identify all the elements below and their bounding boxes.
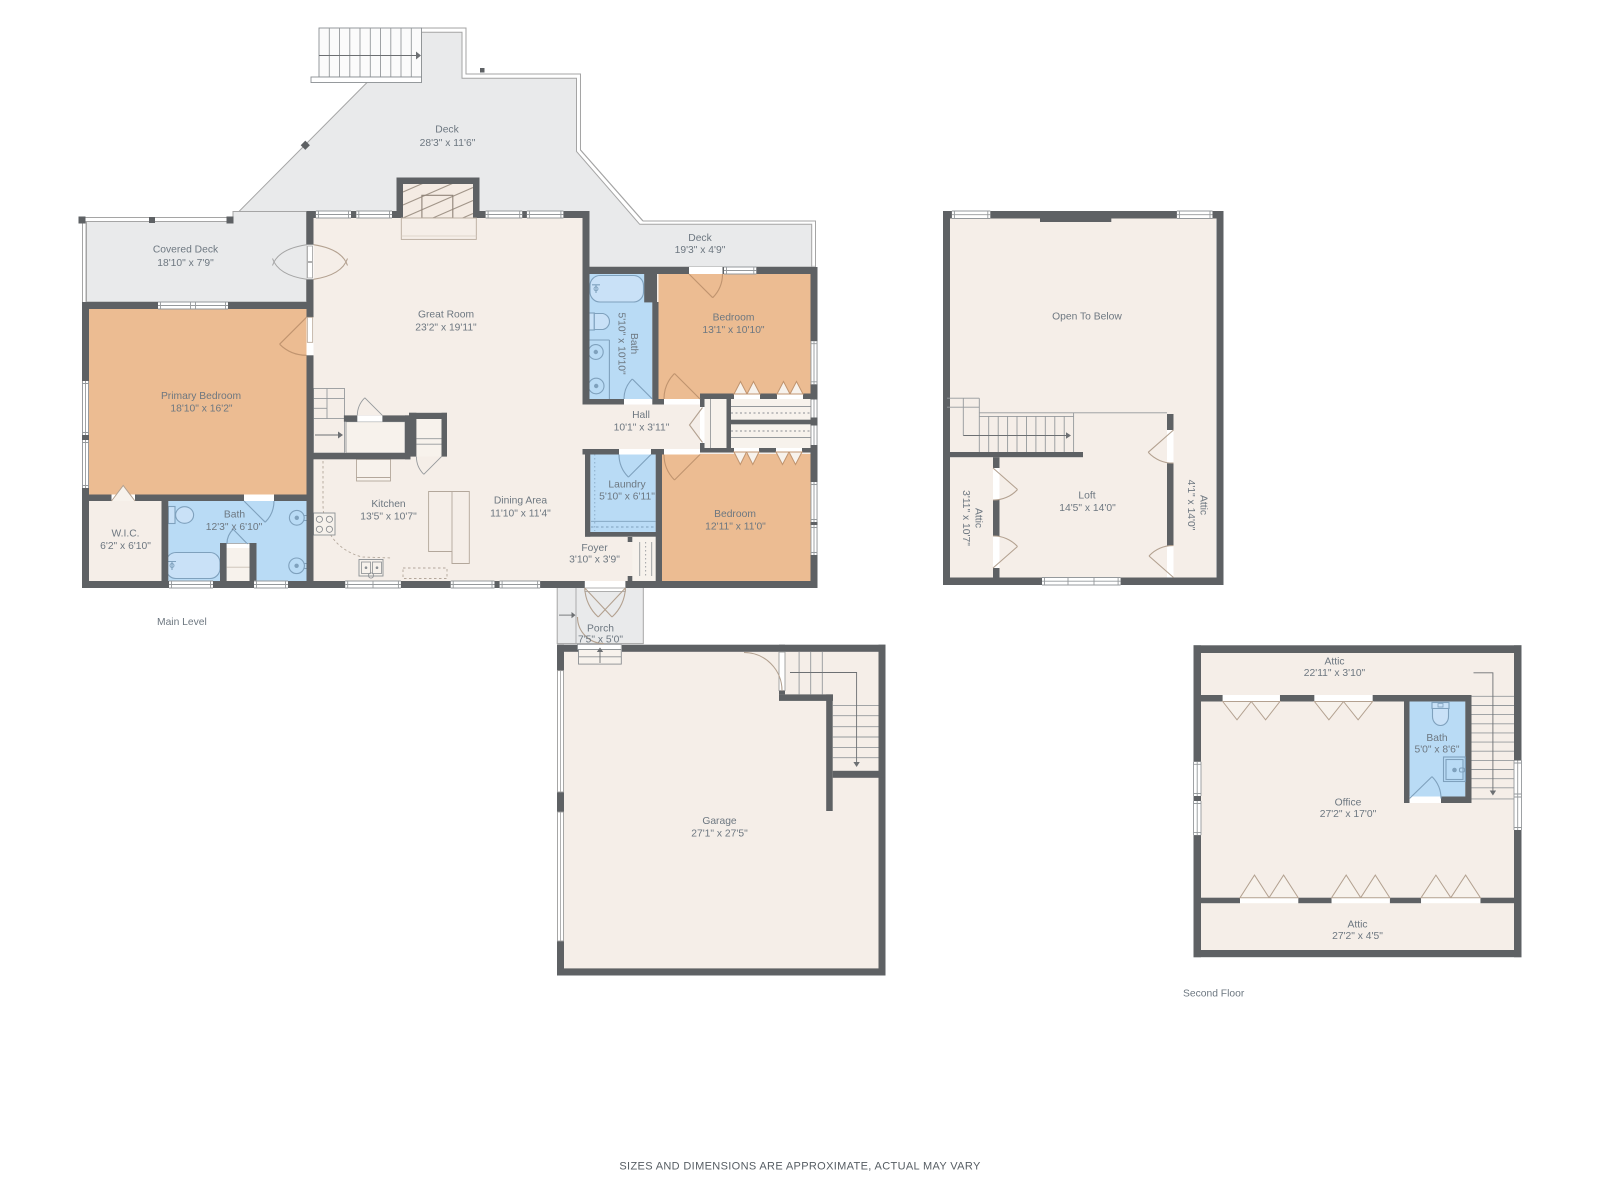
svg-text:Great Room: Great Room — [418, 310, 474, 321]
svg-text:Main Level: Main Level — [157, 617, 207, 628]
svg-text:Second Floor: Second Floor — [1183, 989, 1245, 1000]
svg-text:7'5" x 5'0": 7'5" x 5'0" — [578, 635, 623, 646]
svg-text:5'0" x 8'6": 5'0" x 8'6" — [1414, 745, 1459, 756]
svg-text:Garage: Garage — [702, 816, 737, 827]
svg-text:Office: Office — [1335, 798, 1362, 809]
svg-text:6'2" x 6'10": 6'2" x 6'10" — [100, 541, 151, 552]
svg-text:27'2" x 17'0": 27'2" x 17'0" — [1320, 809, 1377, 820]
svg-text:27'2" x 4'5": 27'2" x 4'5" — [1332, 931, 1383, 942]
svg-text:Foyer: Foyer — [581, 543, 608, 554]
svg-text:Bedroom: Bedroom — [713, 313, 755, 324]
svg-text:13'1" x 10'10": 13'1" x 10'10" — [702, 325, 765, 336]
svg-text:Attic: Attic — [1324, 657, 1344, 668]
svg-text:19'3" x 4'9": 19'3" x 4'9" — [675, 245, 726, 256]
svg-text:18'10" x 16'2": 18'10" x 16'2" — [170, 404, 233, 415]
svg-text:10'1" x 3'11": 10'1" x 3'11" — [614, 423, 670, 434]
svg-text:Dining Area: Dining Area — [494, 496, 548, 507]
svg-text:12'3" x 6'10": 12'3" x 6'10" — [206, 522, 263, 533]
svg-text:Laundry: Laundry — [608, 480, 646, 491]
svg-text:13'5" x 10'7": 13'5" x 10'7" — [360, 512, 417, 523]
svg-text:Attic: Attic — [1347, 920, 1367, 931]
svg-text:28'3" x 11'6": 28'3" x 11'6" — [420, 138, 476, 149]
svg-text:11'10" x 11'4": 11'10" x 11'4" — [490, 509, 551, 520]
svg-text:Bath: Bath — [224, 510, 245, 521]
svg-text:Covered Deck: Covered Deck — [153, 245, 219, 256]
svg-text:Deck: Deck — [435, 125, 459, 136]
svg-text:3'10" x 3'9": 3'10" x 3'9" — [569, 555, 620, 566]
svg-text:Deck: Deck — [688, 233, 712, 244]
svg-text:SIZES AND DIMENSIONS ARE APPRO: SIZES AND DIMENSIONS ARE APPROXIMATE, AC… — [619, 1161, 981, 1173]
svg-text:Porch: Porch — [587, 624, 614, 635]
svg-text:5'10" x 6'11": 5'10" x 6'11" — [599, 492, 655, 503]
svg-text:Primary Bedroom: Primary Bedroom — [161, 391, 241, 402]
svg-text:18'10" x 7'9": 18'10" x 7'9" — [157, 258, 214, 269]
svg-text:Bedroom: Bedroom — [714, 509, 756, 520]
svg-text:Kitchen: Kitchen — [371, 499, 406, 510]
svg-text:14'5" x 14'0": 14'5" x 14'0" — [1059, 503, 1116, 514]
svg-text:27'1" x 27'5": 27'1" x 27'5" — [691, 829, 748, 840]
svg-text:Open To Below: Open To Below — [1052, 312, 1122, 323]
svg-text:Loft: Loft — [1078, 491, 1095, 502]
svg-text:Bath: Bath — [1426, 733, 1447, 744]
svg-text:23'2" x 19'11": 23'2" x 19'11" — [415, 323, 477, 334]
svg-text:12'11" x 11'0": 12'11" x 11'0" — [705, 522, 766, 533]
svg-text:Hall: Hall — [632, 410, 650, 421]
svg-text:W.I.C.: W.I.C. — [111, 529, 139, 540]
svg-text:22'11" x 3'10": 22'11" x 3'10" — [1304, 668, 1366, 679]
